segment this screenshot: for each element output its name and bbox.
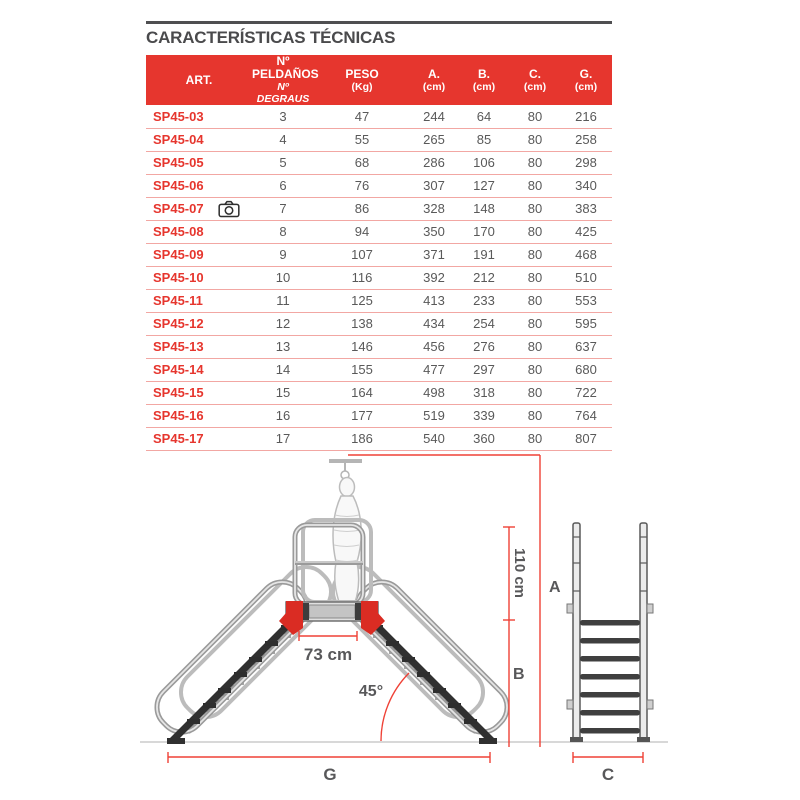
crossover-ladder-drawing — [148, 461, 516, 741]
dimension-annotations: 110 cm A B 73 cm 45° G C — [168, 455, 643, 784]
angle-arc — [381, 673, 409, 741]
technical-diagram: 110 cm A B 73 cm 45° G C — [0, 0, 800, 800]
front-treads — [187, 625, 477, 724]
catalog-page: CARACTERÍSTICAS TÉCNICAS ART.Nº PELDAÑOS… — [0, 0, 800, 800]
dim-label-b: B — [513, 666, 525, 683]
dim-label-73cm: 73 cm — [304, 645, 352, 664]
dim-label-a: A — [549, 579, 561, 596]
platform — [279, 601, 385, 635]
dim-label-110cm: 110 cm — [511, 548, 528, 598]
dim-label-c: C — [602, 765, 614, 784]
front-view-ladder — [567, 523, 653, 742]
dim-label-g: G — [323, 765, 336, 784]
dim-label-45deg: 45° — [359, 683, 383, 700]
ladder-rungs — [580, 620, 640, 734]
